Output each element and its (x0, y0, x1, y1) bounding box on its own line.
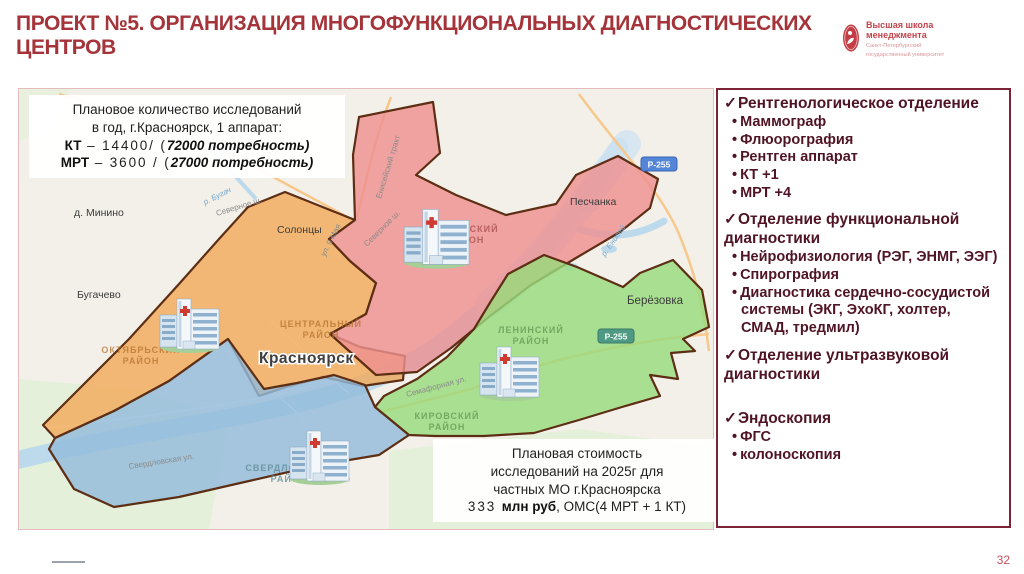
bullet-icon: • (732, 167, 737, 183)
list-item: •МРТ +4 (724, 185, 1001, 203)
label-krasnoyarsk: Красноярск (259, 350, 354, 367)
logo-line2: менеджмента (866, 30, 944, 40)
list-item: •КТ +1 (724, 167, 1001, 185)
list-item: •Рентген аппарат (724, 149, 1001, 167)
planned-volume-box: Плановое количество исследований в год, … (29, 95, 345, 178)
planned-cost-line4: 333 млн руб, ОМС(4 МРТ + 1 КТ) (441, 498, 713, 516)
bullet-icon: • (732, 285, 737, 301)
section-ultrasound: ✓Отделение ультразвуковой диагностики (724, 347, 1001, 385)
label-centralny-district: ЦЕНТРАЛЬНЫЙ (280, 318, 362, 329)
label-kirovsky-district: КИРОВСКИЙ (415, 410, 480, 421)
svg-text:РАЙОН: РАЙОН (513, 335, 550, 346)
bullet-icon: • (732, 447, 737, 463)
section-title: Эндоскопия (738, 410, 831, 427)
road-badge-r255-north: Р-255 (641, 157, 677, 171)
list-item: •колоноскопия (724, 447, 1001, 465)
svg-text:РАЙОН: РАЙОН (123, 355, 160, 366)
departments-panel: ✓Рентгенологическое отделение •Маммограф… (716, 88, 1011, 528)
section-title: Отделение функциональной диагностики (724, 211, 959, 247)
list-item: •ФГС (724, 429, 1001, 447)
svg-text:Р-255: Р-255 (648, 160, 671, 170)
planned-volume-mrt: МРТ – 3600 / (27000 потребность) (37, 154, 337, 172)
planned-volume-line1: Плановое количество исследований (37, 101, 337, 119)
svg-text:РАЙОН: РАЙОН (303, 329, 340, 340)
list-item: •Диагностика сердечно-сосудистой системы… (724, 285, 1001, 338)
list-item: •Маммограф (724, 114, 1001, 132)
gsom-emblem-icon (842, 20, 860, 60)
section-title: Рентгенологическое отделение (738, 95, 979, 112)
road-badge-r255-south: Р-255 (598, 329, 634, 343)
bullet-icon: • (732, 267, 737, 283)
planned-cost-box: Плановая стоимость исследований на 2025г… (433, 439, 721, 522)
label-minino: д. Минино (74, 207, 124, 219)
planned-volume-line2: в год, г.Красноярск, 1 аппарат: (37, 119, 337, 137)
list-item: •Флюорография (724, 132, 1001, 150)
svg-text:РАЙОН: РАЙОН (429, 421, 466, 432)
check-icon: ✓ (724, 211, 737, 228)
section-title: Отделение ультразвуковой диагностики (724, 347, 949, 383)
planned-cost-line1: Плановая стоимость (441, 445, 713, 463)
planned-volume-kt: КТ – 14400/ (72000 потребность) (37, 137, 337, 155)
label-leninsky-district: ЛЕНИНСКИЙ (498, 324, 564, 335)
section-radiology: ✓Рентгенологическое отделение •Маммограф… (724, 95, 1001, 202)
svg-text:Р-255: Р-255 (605, 332, 628, 342)
slide-title: ПРОЕКТ №5. ОРГАНИЗАЦИЯ МНОГОФУНКЦИОНАЛЬН… (16, 12, 826, 60)
label-bugachevo: Бугачево (77, 289, 121, 301)
bullet-icon: • (732, 149, 737, 165)
krasnoyarsk-map: Северное ш. Северное ш. ул. 9 Мая Енисей… (18, 88, 714, 530)
planned-cost-line3: частных МО г.Красноярска (441, 481, 713, 499)
check-icon: ✓ (724, 95, 737, 112)
list-item: •Нейрофизиология (РЭГ, ЭНМГ, ЭЭГ) (724, 249, 1001, 267)
logo-subline1: Санкт-Петербургский (866, 43, 944, 50)
bullet-icon: • (732, 185, 737, 201)
bullet-icon: • (732, 249, 737, 265)
label-peschanka: Песчанка (570, 196, 616, 208)
gsom-logo: Высшая школа менеджмента Санкт-Петербург… (842, 20, 944, 60)
check-icon: ✓ (724, 347, 737, 364)
slide: ПРОЕКТ №5. ОРГАНИЗАЦИЯ МНОГОФУНКЦИОНАЛЬН… (0, 0, 1024, 574)
label-solontsy: Солонцы (277, 224, 322, 236)
section-functional: ✓Отделение функциональной диагностики •Н… (724, 211, 1001, 337)
bullet-icon: • (732, 429, 737, 445)
footer-divider (52, 561, 85, 563)
logo-line1: Высшая школа (866, 20, 944, 30)
list-item: •Спирография (724, 267, 1001, 285)
planned-cost-line2: исследований на 2025г для (441, 463, 713, 481)
logo-subline2: государственный университет (866, 52, 944, 59)
page-number: 32 (997, 553, 1010, 567)
section-endoscopy: ✓Эндоскопия •ФГС •колоноскопия (724, 410, 1001, 464)
check-icon: ✓ (724, 410, 737, 427)
bullet-icon: • (732, 132, 737, 148)
bullet-icon: • (732, 114, 737, 130)
label-berezovka: Берёзовка (627, 295, 684, 307)
